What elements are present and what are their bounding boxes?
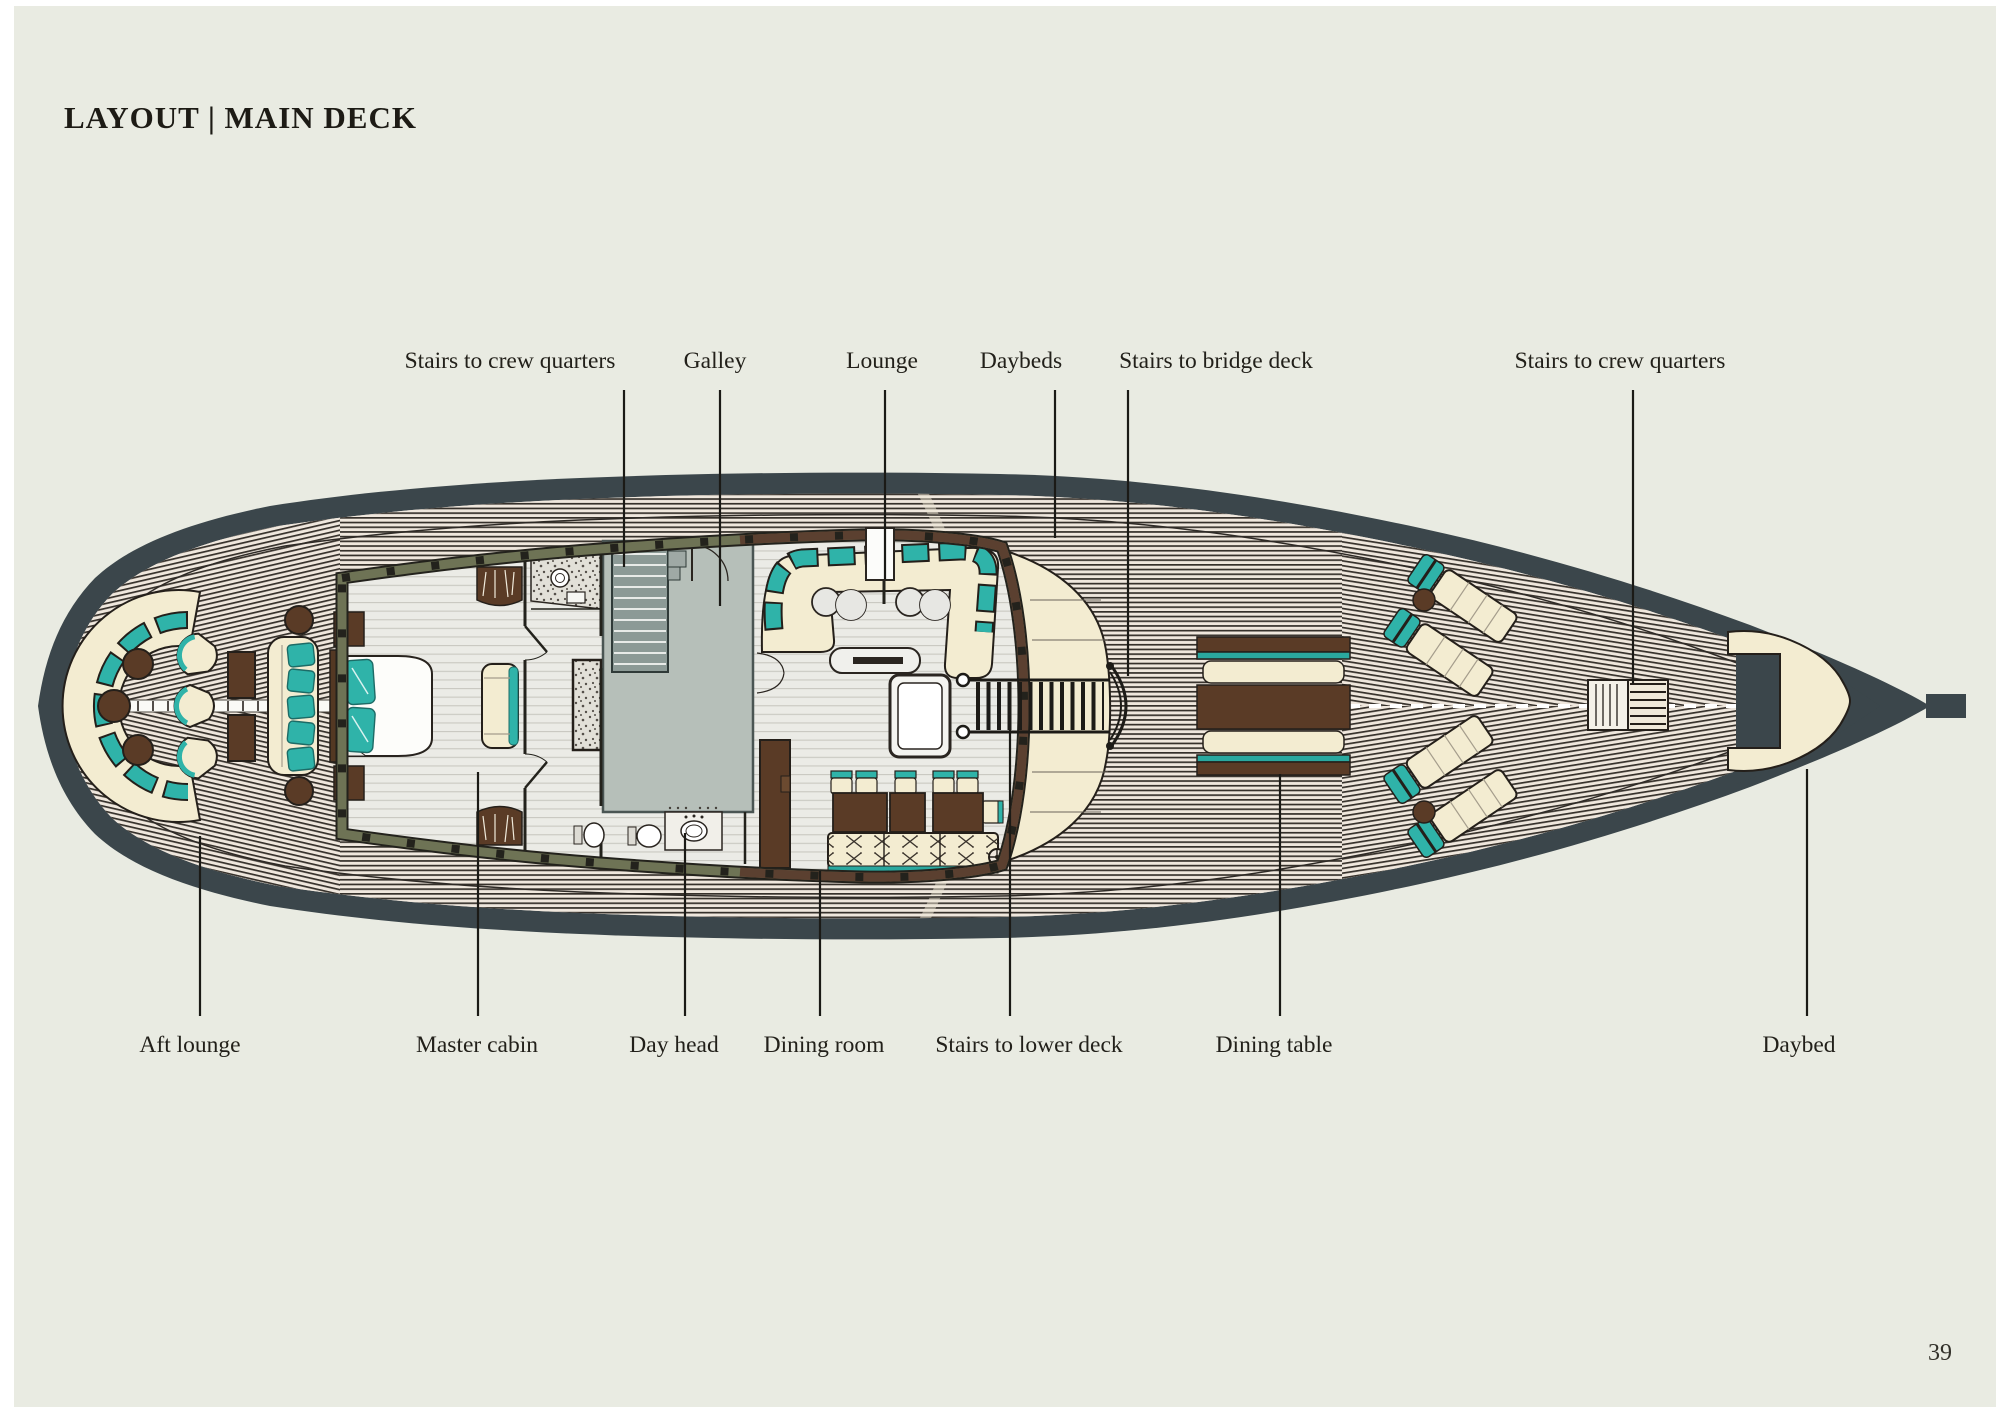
page-title: LAYOUT | MAIN DECK	[64, 100, 417, 136]
aft-side-table	[228, 715, 255, 761]
cocktail-table	[123, 649, 153, 679]
callout-stairs-to-lower-deck: Stairs to lower deck	[935, 1032, 1122, 1059]
dresser	[477, 567, 522, 606]
aft-side-table	[228, 652, 255, 698]
bowsprit	[1926, 694, 1966, 718]
callout-day-head: Day head	[629, 1032, 718, 1059]
dining-table-exterior	[1197, 637, 1350, 775]
cocktail-table	[98, 690, 130, 722]
galley	[603, 541, 753, 812]
dining-room-table	[890, 793, 925, 832]
aft-round-table	[285, 606, 313, 634]
bar-cabinet	[760, 740, 790, 868]
cocktail-table	[123, 735, 153, 765]
callout-stairs-to-crew-quarters-fwd: Stairs to crew quarters	[1515, 348, 1726, 375]
callout-dining-room: Dining room	[764, 1032, 885, 1059]
callout-stairs-to-crew-quarters-aft: Stairs to crew quarters	[405, 348, 616, 375]
toilet	[584, 823, 604, 847]
aft-sofa	[268, 637, 318, 775]
dining-chair	[933, 771, 954, 794]
callout-stairs-to-bridge-deck: Stairs to bridge deck	[1119, 348, 1313, 375]
lounger-side-table	[1413, 589, 1435, 611]
aft-round-table	[285, 777, 313, 805]
callout-daybed-bow: Daybed	[1762, 1032, 1835, 1059]
deck-plan-stage: LAYOUT | MAIN DECK Stairs to crew quarte…	[0, 0, 1999, 1413]
callout-aft-lounge: Aft lounge	[139, 1032, 240, 1059]
callout-master-cabin: Master cabin	[416, 1032, 538, 1059]
deck-plan-drawing	[0, 0, 1999, 1413]
console-sideboard	[830, 648, 920, 673]
callout-daybeds: Daybeds	[980, 348, 1062, 375]
dresser	[477, 807, 522, 846]
dining-chair	[856, 771, 877, 794]
stairs-to-crew-quarters-forward	[1588, 680, 1668, 730]
dining-end-chair	[982, 801, 1003, 823]
callout-lounge: Lounge	[846, 348, 918, 375]
armoire	[573, 660, 601, 750]
toilet	[637, 825, 661, 847]
wc	[567, 592, 585, 603]
dining-chair	[895, 771, 916, 794]
mast-pillar	[866, 528, 894, 580]
cabin-sofa	[482, 664, 518, 748]
page-number: 39	[1928, 1340, 1952, 1367]
callout-dining-table: Dining table	[1216, 1032, 1333, 1059]
callout-galley: Galley	[684, 348, 747, 375]
dining-chair	[957, 771, 978, 794]
stairs-to-lower-deck-opening	[890, 675, 950, 757]
dining-room-table	[833, 793, 887, 832]
dining-chair	[831, 771, 852, 794]
washbasin	[551, 569, 569, 587]
dining-room-table	[933, 793, 983, 832]
lounger-side-table	[1413, 801, 1435, 823]
